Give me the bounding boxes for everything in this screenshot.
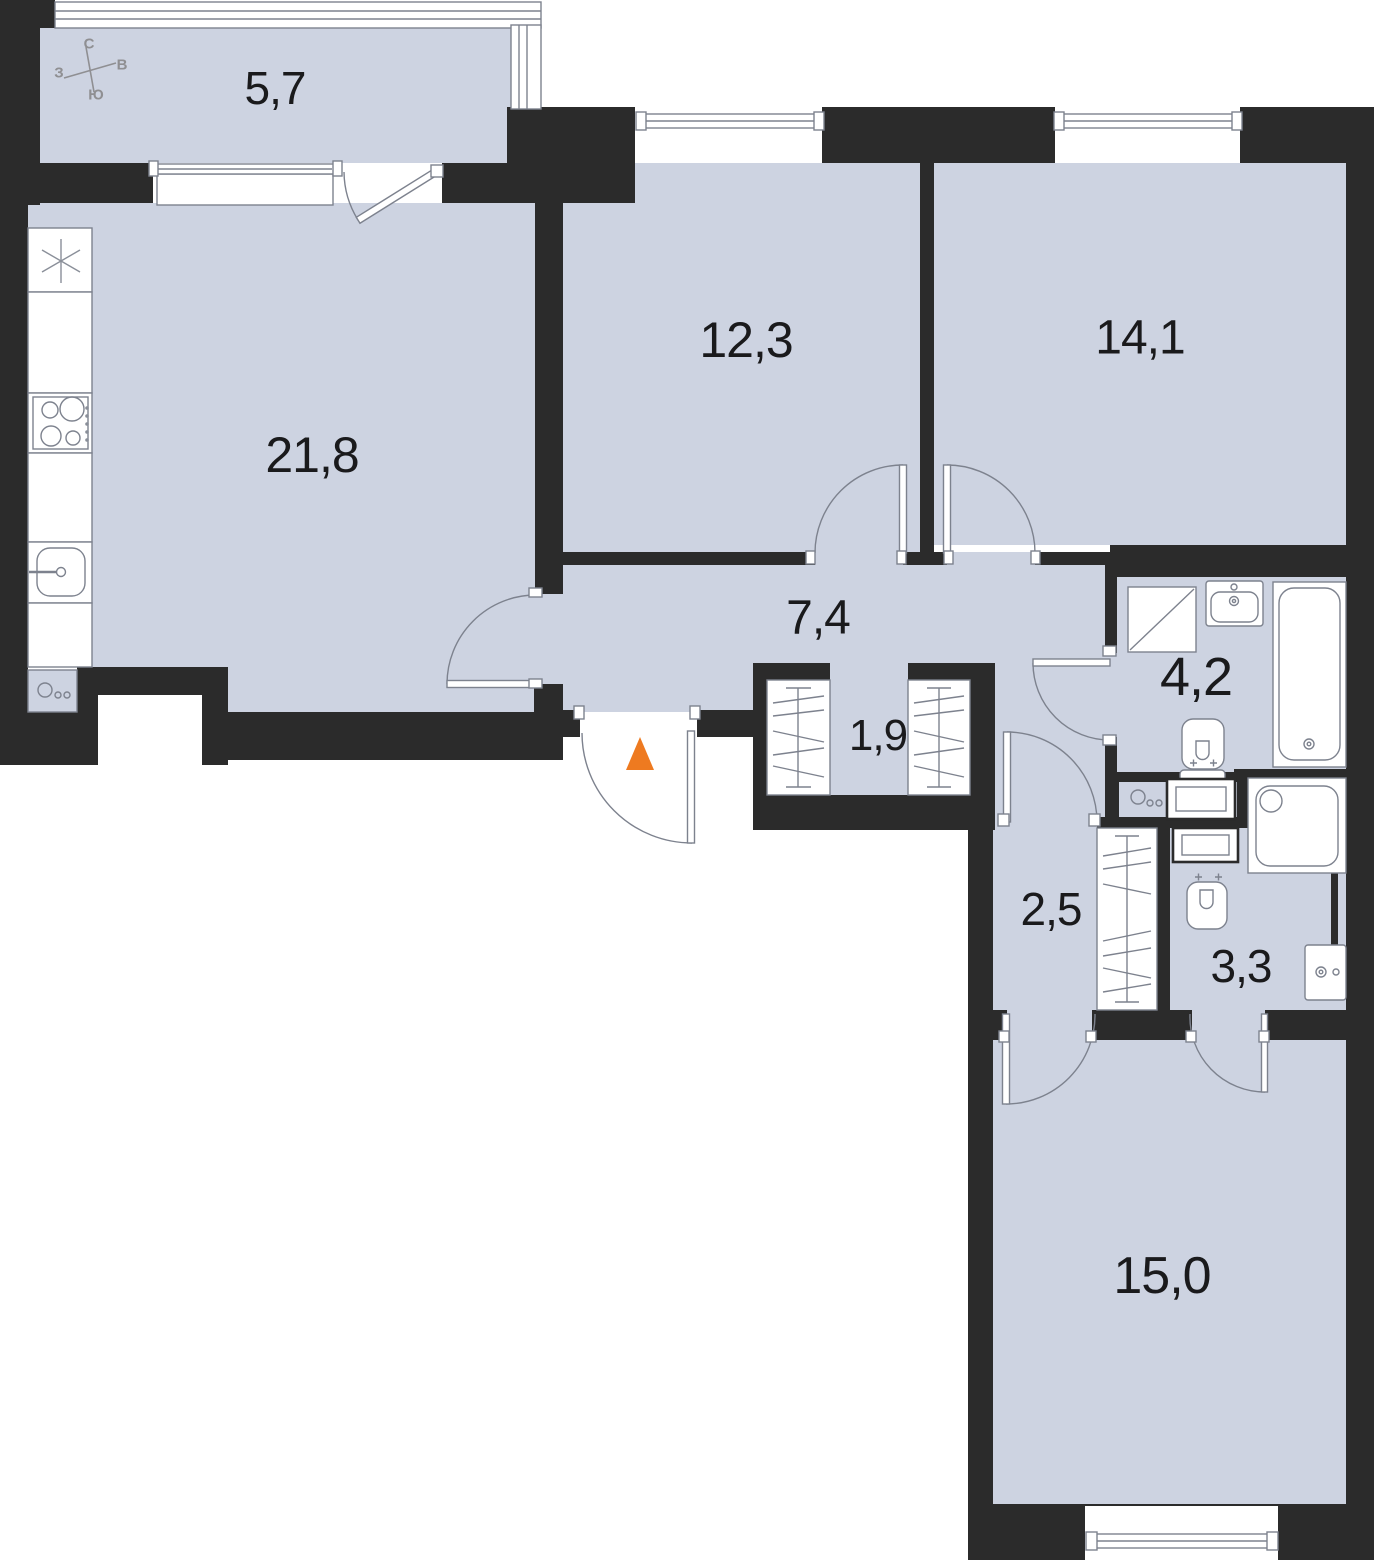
wall-segment (1331, 873, 1338, 948)
wall-segment (1157, 828, 1170, 1010)
wall-segment (1346, 107, 1374, 1560)
compass-west-label: З (54, 65, 63, 82)
wall-segment (822, 107, 1055, 163)
entrance-door (574, 706, 700, 843)
area-label-bedroom-right: 14,1 (1095, 311, 1184, 366)
wall-segment (908, 663, 975, 680)
compass-east-label: В (117, 57, 128, 74)
room-floor-hallway (560, 663, 753, 712)
wall-segment (970, 663, 995, 817)
wall-segment (753, 663, 767, 795)
wall-segment (1117, 772, 1240, 782)
wall-segment (28, 712, 77, 765)
window-niche (1085, 1506, 1278, 1560)
wall-segment (507, 107, 635, 203)
wardrobe-icon (1097, 828, 1157, 1010)
wall-segment (1092, 1010, 1192, 1040)
area-label-corridor: 2,5 (1021, 882, 1082, 936)
wall-segment (1240, 107, 1346, 163)
wall-segment (697, 710, 755, 737)
wall-segment (228, 712, 563, 760)
wall-segment (903, 552, 947, 565)
wall-segment (77, 695, 98, 765)
wall-segment (753, 795, 995, 830)
wall-segment (0, 205, 28, 765)
window-niche (1055, 107, 1240, 163)
room-floor-hallway (995, 663, 1117, 820)
doorway-floor (815, 552, 903, 565)
area-label-bedroom-top: 12,3 (699, 311, 792, 369)
doorway-floor (535, 594, 560, 684)
room-floor-kitchen-living (228, 667, 535, 712)
wardrobe-icon (908, 680, 970, 795)
wall-segment (560, 552, 815, 565)
window-icon (149, 161, 342, 205)
wall-segment (753, 663, 830, 680)
area-label-balcony: 5,7 (245, 61, 306, 115)
wall-segment (535, 163, 563, 594)
wall-segment (1105, 782, 1119, 817)
wall-segment (0, 0, 55, 28)
area-label-kitchen-living: 21,8 (265, 426, 358, 484)
wardrobe-icon (767, 680, 830, 795)
wall-segment (1097, 817, 1250, 828)
wall-segment (1234, 769, 1346, 781)
area-label-hallway: 7,4 (786, 591, 850, 646)
wall-segment (968, 815, 993, 1560)
window-niche (637, 107, 822, 163)
area-label-bathroom: 4,2 (1160, 646, 1232, 708)
wall-segment (993, 1010, 1007, 1040)
shaft-floor (1119, 782, 1167, 818)
doorway-floor (1192, 1010, 1265, 1040)
wall-segment (1105, 565, 1117, 653)
entrance-marker-icon (626, 737, 654, 770)
floor-plan: С Ю З В 5,7 21,8 12,3 14,1 7,4 1,9 4,2 2… (0, 0, 1374, 1560)
wall-segment (920, 163, 934, 565)
utility-shaft-icon (28, 670, 77, 712)
wall-segment (77, 667, 228, 695)
area-label-bedroom-bottom: 15,0 (1113, 1246, 1210, 1306)
compass-south-label: Ю (88, 87, 103, 104)
wall-segment (1035, 552, 1110, 565)
area-label-closet: 1,9 (849, 711, 907, 761)
wall-segment (202, 695, 228, 765)
compass-north-label: С (84, 36, 95, 53)
wall-segment (28, 163, 153, 203)
doorway-floor (947, 552, 1035, 565)
doorway-floor (1007, 1010, 1092, 1040)
wall-segment (1265, 1010, 1346, 1040)
wall-segment (534, 684, 563, 712)
wall-segment (1110, 545, 1346, 577)
wall-segment (563, 710, 580, 737)
area-label-shower-room: 3,3 (1211, 939, 1272, 993)
